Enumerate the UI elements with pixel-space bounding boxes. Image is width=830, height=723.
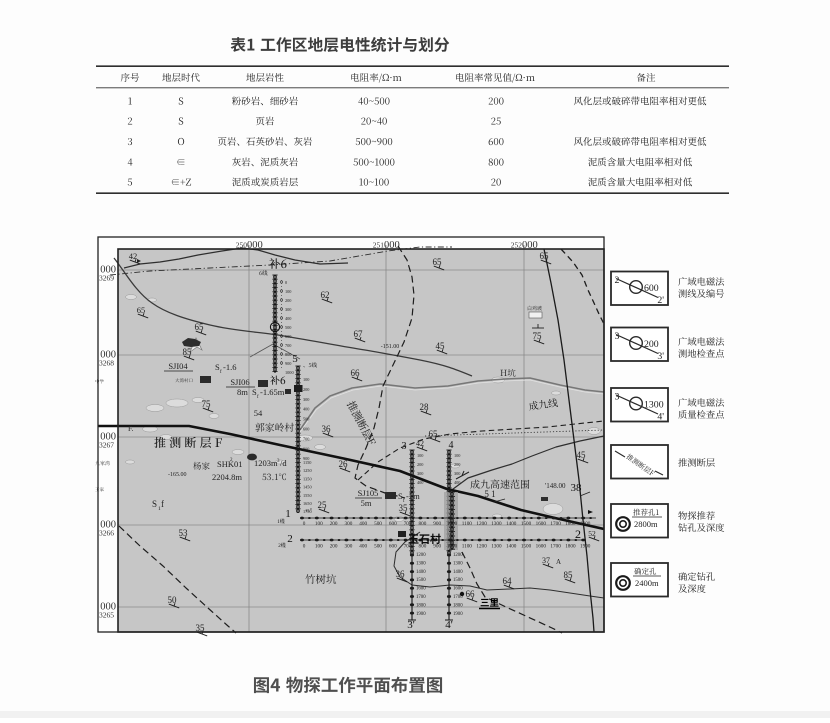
svg-text:500: 500	[374, 521, 382, 527]
svg-text:26: 26	[339, 459, 349, 469]
svg-text:500: 500	[374, 544, 382, 550]
svg-text:2线: 2线	[278, 542, 286, 549]
svg-text:1300: 1300	[416, 561, 426, 566]
svg-text:A: A	[556, 558, 561, 566]
svg-text:1600: 1600	[416, 587, 426, 592]
svg-text:f: f	[161, 499, 164, 509]
svg-text:65: 65	[429, 429, 439, 439]
svg-text:600: 600	[644, 283, 659, 294]
svg-text:1203m: 1203m	[254, 458, 278, 468]
svg-text:700: 700	[404, 544, 412, 550]
svg-text:2400m: 2400m	[635, 578, 659, 588]
svg-text:600: 600	[285, 334, 291, 339]
svg-text:35: 35	[399, 503, 409, 513]
svg-text:200: 200	[330, 544, 338, 550]
svg-text:F.: F.	[128, 424, 134, 433]
svg-text:4': 4'	[657, 412, 664, 423]
svg-text:4: 4	[449, 440, 454, 451]
svg-text:65: 65	[195, 322, 205, 332]
svg-text:36: 36	[396, 569, 406, 579]
svg-text:66: 66	[351, 368, 361, 378]
svg-text:54: 54	[254, 408, 263, 418]
svg-text:900: 900	[285, 361, 291, 366]
svg-text:1200: 1200	[416, 553, 426, 558]
svg-text:1550: 1550	[303, 493, 312, 498]
svg-text:64: 64	[503, 576, 513, 586]
svg-text:45: 45	[436, 341, 446, 351]
svg-text:200: 200	[644, 339, 659, 350]
svg-text:1200: 1200	[476, 521, 487, 527]
svg-text:3: 3	[615, 331, 620, 342]
svg-text:1300: 1300	[453, 561, 463, 566]
svg-text:2: 2	[575, 527, 581, 541]
svg-text:200: 200	[330, 521, 338, 527]
svg-text:1000: 1000	[285, 370, 294, 375]
svg-text:900: 900	[433, 544, 441, 550]
svg-text:SJI04: SJI04	[168, 361, 188, 371]
svg-text:0: 0	[285, 280, 287, 285]
svg-text:1700: 1700	[550, 521, 561, 527]
svg-text:3': 3'	[657, 351, 664, 362]
svg-text:67: 67	[354, 329, 364, 339]
svg-text:4': 4'	[445, 619, 453, 631]
svg-text:2204.8m: 2204.8m	[212, 472, 242, 482]
svg-text:85: 85	[183, 347, 193, 357]
svg-text:SJ105: SJ105	[358, 488, 379, 498]
svg-text:0: 0	[310, 507, 312, 511]
svg-text:-165.00: -165.00	[168, 472, 187, 478]
svg-text:100: 100	[315, 544, 323, 550]
svg-text:1500: 1500	[521, 544, 532, 550]
svg-text:66: 66	[466, 589, 476, 599]
svg-text:1: 1	[285, 508, 291, 520]
svg-text:1800: 1800	[416, 603, 426, 608]
svg-text:1000: 1000	[447, 521, 458, 527]
svg-text:1900: 1900	[453, 612, 463, 617]
svg-text:1900: 1900	[416, 612, 426, 617]
svg-text:28: 28	[420, 402, 430, 412]
svg-text:2: 2	[287, 533, 293, 545]
svg-text:5: 5	[292, 353, 298, 365]
svg-text:1400: 1400	[506, 521, 517, 527]
svg-text:800: 800	[419, 521, 427, 527]
svg-text:3266: 3266	[99, 529, 114, 538]
svg-text:/d: /d	[280, 458, 287, 468]
svg-text:-1.65m: -1.65m	[260, 387, 285, 397]
svg-text:200: 200	[285, 298, 291, 303]
svg-text:25: 25	[318, 500, 328, 510]
svg-text:700: 700	[285, 343, 291, 348]
svg-text:2800m: 2800m	[634, 519, 658, 529]
svg-text:500: 500	[285, 325, 291, 330]
svg-text:100: 100	[454, 453, 460, 458]
svg-text:8m: 8m	[237, 387, 248, 397]
svg-text:75: 75	[202, 399, 212, 409]
svg-text:400: 400	[359, 544, 367, 550]
svg-text:'148.00: '148.00	[545, 482, 566, 490]
svg-text:0: 0	[303, 544, 306, 550]
svg-text:100: 100	[285, 289, 291, 294]
svg-text:36: 36	[322, 424, 332, 434]
svg-text:252: 252	[511, 241, 523, 250]
svg-text:3265: 3265	[99, 611, 114, 620]
svg-text:700: 700	[404, 521, 412, 527]
svg-text:100: 100	[315, 521, 323, 527]
svg-text:-151.00: -151.00	[381, 344, 400, 350]
svg-text:1500: 1500	[521, 521, 532, 527]
svg-text:700: 700	[303, 436, 309, 441]
svg-text:900: 900	[433, 521, 441, 527]
svg-text:600: 600	[389, 521, 397, 527]
svg-text:1900: 1900	[580, 521, 591, 527]
svg-text:1100: 1100	[462, 521, 473, 527]
svg-text:53: 53	[179, 528, 189, 538]
svg-text:3: 3	[402, 441, 407, 452]
svg-text:3: 3	[615, 392, 620, 403]
svg-text:1600: 1600	[453, 587, 463, 592]
svg-text:600: 600	[303, 427, 309, 432]
svg-text:3': 3'	[407, 619, 415, 631]
svg-text:-2m: -2m	[406, 491, 420, 501]
svg-text:1150: 1150	[303, 460, 311, 465]
svg-text:3268: 3268	[99, 359, 114, 368]
svg-text:300: 300	[345, 521, 353, 527]
svg-text:1400: 1400	[506, 544, 517, 550]
svg-text:800: 800	[285, 352, 291, 357]
svg-text:251: 251	[373, 241, 385, 250]
svg-text:800: 800	[419, 544, 427, 550]
svg-text:2': 2'	[657, 295, 664, 306]
svg-text:300: 300	[303, 397, 309, 402]
svg-text:100: 100	[417, 453, 423, 458]
svg-text:1900: 1900	[580, 544, 591, 550]
svg-text:3267: 3267	[99, 441, 114, 450]
svg-text:200: 200	[417, 462, 423, 467]
svg-text:S: S	[152, 499, 157, 509]
svg-text:1200: 1200	[476, 544, 487, 550]
svg-text:38: 38	[571, 482, 583, 494]
svg-text:SJI06: SJI06	[230, 377, 249, 387]
svg-text:1700: 1700	[416, 595, 426, 600]
svg-text:85: 85	[564, 570, 574, 580]
svg-text:1450: 1450	[303, 485, 312, 490]
svg-text:45: 45	[577, 450, 587, 460]
svg-text:1400: 1400	[453, 570, 463, 575]
svg-text:75: 75	[533, 331, 543, 341]
svg-text:1700: 1700	[550, 544, 561, 550]
svg-text:1250: 1250	[303, 468, 312, 473]
svg-text:65: 65	[433, 257, 443, 267]
svg-text:1600: 1600	[536, 521, 547, 527]
svg-text:400: 400	[285, 316, 291, 321]
svg-text:100: 100	[303, 377, 309, 382]
svg-text:1650: 1650	[303, 501, 312, 506]
svg-text:300: 300	[454, 471, 460, 476]
svg-text:5m: 5m	[361, 498, 372, 508]
svg-text:1300: 1300	[491, 544, 502, 550]
svg-text:1线: 1线	[277, 518, 285, 525]
svg-text:1500: 1500	[416, 578, 426, 583]
svg-text:600: 600	[389, 544, 397, 550]
svg-text:1300: 1300	[644, 400, 664, 411]
svg-text:200: 200	[454, 462, 460, 467]
svg-text:50: 50	[168, 595, 178, 605]
svg-text:1400: 1400	[416, 570, 426, 575]
svg-text:400: 400	[417, 480, 423, 485]
svg-text:300: 300	[285, 307, 291, 312]
svg-text:1100: 1100	[462, 544, 473, 550]
svg-text:5 1: 5 1	[484, 489, 495, 499]
svg-text:200: 200	[303, 387, 309, 392]
svg-text:300: 300	[417, 471, 423, 476]
svg-text:400: 400	[454, 480, 460, 485]
svg-text:1300: 1300	[491, 521, 502, 527]
svg-text:-1.6: -1.6	[223, 362, 236, 372]
svg-text:1000: 1000	[447, 544, 458, 550]
svg-text:1200: 1200	[453, 553, 463, 558]
svg-text:2: 2	[615, 275, 620, 286]
svg-text:1800: 1800	[565, 544, 576, 550]
svg-text:1800: 1800	[453, 603, 463, 608]
svg-text:1350: 1350	[303, 476, 312, 481]
svg-text:400: 400	[303, 407, 309, 412]
svg-text:65: 65	[540, 251, 550, 261]
svg-text:400: 400	[359, 521, 367, 527]
svg-text:1600: 1600	[536, 544, 547, 550]
svg-text:1500: 1500	[453, 578, 463, 583]
svg-text:0: 0	[303, 521, 306, 527]
svg-text:300: 300	[345, 544, 353, 550]
svg-text:500: 500	[303, 417, 309, 422]
svg-text:800: 800	[303, 446, 309, 451]
